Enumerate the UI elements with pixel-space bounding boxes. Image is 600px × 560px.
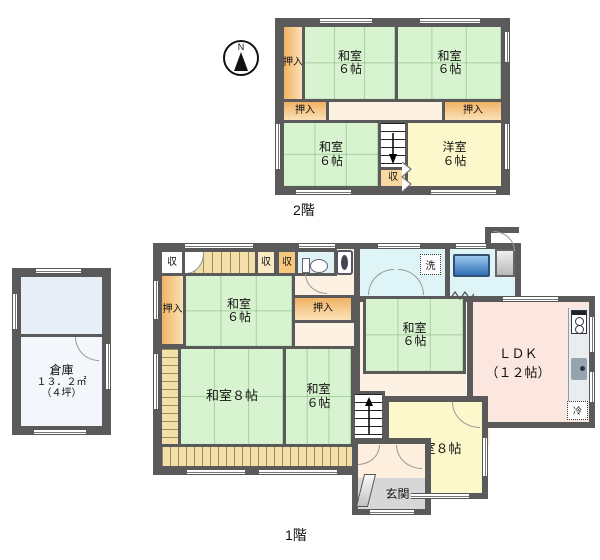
room-washitsu-1f-upperleft: 和室 ６帖 — [183, 273, 295, 349]
floor2-plan: 押入 和室 ６帖 和室 ６帖 押入 押入 和室 ６帖 収 — [275, 18, 510, 195]
room-label: 倉庫 — [49, 364, 73, 377]
door-arc — [368, 269, 394, 295]
stair-curve — [185, 252, 204, 274]
window-marker — [153, 354, 159, 409]
room-size: （１２帖） — [485, 362, 550, 381]
toilet-tank-icon — [302, 258, 310, 273]
sink-faucet-icon — [580, 366, 585, 371]
room-size: ６帖 — [227, 311, 251, 324]
room-label: 押入 — [313, 303, 333, 314]
water-heater-icon — [336, 250, 353, 275]
door-arc — [396, 445, 422, 469]
room-size: ６帖 — [437, 63, 461, 76]
window-marker — [320, 18, 372, 24]
window-marker — [299, 243, 335, 249]
floor2-label: 2階 — [293, 200, 315, 220]
zigzag-symbol — [449, 290, 475, 300]
stairs-down-arrow-icon — [388, 131, 398, 165]
room-label: 玄関 — [373, 485, 409, 502]
window-marker — [185, 243, 253, 249]
room-washitsu-1f-bottom: 和室 ６帖 — [283, 346, 354, 447]
room-label: 収 — [261, 257, 271, 268]
room-area-sqm: １３．２㎡ — [37, 377, 87, 388]
back-door-arc — [493, 231, 515, 251]
stove-detail — [572, 311, 586, 315]
window-marker — [105, 344, 111, 389]
room-oshiire-1f-left: 押入 — [159, 273, 186, 347]
window-marker — [275, 124, 281, 169]
window-marker — [589, 372, 595, 402]
compass-icon: N — [223, 40, 259, 76]
window-marker — [431, 189, 496, 195]
folding-door-icon — [401, 162, 413, 192]
room-size: ６帖 — [338, 63, 362, 76]
floor-plan-canvas: N 押入 和室 ６帖 和室 ６帖 押入 押入 和室 ６帖 — [0, 0, 600, 560]
room-label: 和室８帖 — [206, 389, 258, 404]
door-arc — [358, 445, 380, 465]
window-marker — [153, 281, 159, 319]
room-label: 洋室 — [442, 141, 466, 154]
fridge-label: 冷 — [573, 404, 582, 417]
window-marker — [259, 469, 337, 475]
room-label: 押入 — [283, 57, 303, 68]
door-arc — [452, 402, 480, 428]
sink-icon — [571, 358, 587, 380]
room-size: ６帖 — [402, 335, 426, 348]
compass-north-label: N — [225, 43, 257, 52]
floor1-left-block: 収 収 収 押入 和室 ６帖 — [153, 243, 360, 475]
room-label: 和室 — [402, 322, 426, 335]
room-area-tsubo: （４坪） — [42, 388, 82, 399]
room-label: 収 — [282, 257, 292, 268]
genkan-block: 玄関 — [352, 438, 431, 515]
window-marker — [589, 317, 595, 352]
door-arc — [305, 274, 327, 294]
window-marker — [420, 18, 480, 24]
window-marker — [411, 493, 469, 499]
room-size: ６帖 — [442, 155, 466, 168]
room-label: 収 — [388, 172, 398, 183]
entrance-door-marker — [370, 509, 414, 515]
room-label: ＬＤＫ — [498, 343, 537, 362]
toilet-room — [295, 249, 337, 276]
room-oshiire-1f-mid: 押入 — [292, 295, 354, 323]
window-marker — [378, 243, 420, 249]
room-washitsu-2f-topleft: 和室 ６帖 — [302, 24, 398, 102]
room-label: 和室 — [227, 298, 251, 311]
annex-plan: 倉庫 １３．２㎡ （４坪） — [12, 268, 111, 435]
room-label: 和室 — [319, 141, 343, 154]
water-heater-detail — [341, 255, 348, 270]
stove-icon — [571, 310, 587, 334]
room-washitsu-1f-8mat: 和室８帖 — [178, 346, 286, 447]
floor1-label: 1階 — [285, 525, 307, 545]
room-label: 和室 — [338, 50, 362, 63]
window-marker — [12, 294, 18, 329]
room-washitsu-1f-midright: 和室 ６帖 — [363, 296, 466, 374]
window-marker — [187, 469, 245, 475]
window-marker — [456, 243, 486, 249]
stove-burner-icon — [575, 325, 584, 334]
room-label: 収 — [167, 257, 177, 268]
room-label: 押入 — [295, 105, 315, 116]
room-label: 押入 — [163, 304, 183, 315]
washroom-bath-block: 洗 — [354, 243, 521, 302]
window-marker — [296, 189, 351, 195]
floor1-plan: 収 収 収 押入 和室 ６帖 — [153, 243, 595, 518]
laundry-label: 洗 — [426, 257, 436, 272]
room-label: 和室 — [306, 383, 330, 396]
toilet-icon — [310, 259, 328, 273]
staircase-1f-top — [182, 249, 258, 276]
window-marker — [504, 32, 510, 62]
window-marker — [36, 268, 81, 274]
room-washitsu-2f-topright: 和室 ６帖 — [395, 24, 504, 102]
veranda-bottom — [159, 444, 355, 469]
laundry-box: 洗 — [420, 254, 441, 275]
window-marker — [34, 429, 86, 435]
fridge-box: 冷 — [567, 401, 588, 420]
room-size: ６帖 — [306, 397, 330, 410]
window-marker — [503, 296, 558, 302]
room-size: ６帖 — [319, 155, 343, 168]
compass-needle-icon — [234, 52, 248, 71]
window-marker — [504, 124, 510, 169]
annex-upper-room — [18, 274, 105, 337]
room-label: 和室 — [437, 50, 461, 63]
room-washitsu-2f-bottomleft: 和室 ６帖 — [281, 120, 381, 189]
utility-unit-icon — [495, 249, 515, 277]
bathtub-icon — [453, 254, 490, 277]
wall — [445, 249, 450, 296]
window-marker — [482, 438, 488, 476]
room-closet-b: 収 — [255, 249, 277, 276]
room-yoshitsu-2f: 洋室 ６帖 — [405, 120, 504, 189]
room-label: 押入 — [463, 105, 483, 116]
stairs-up-arrow-icon — [364, 396, 374, 436]
